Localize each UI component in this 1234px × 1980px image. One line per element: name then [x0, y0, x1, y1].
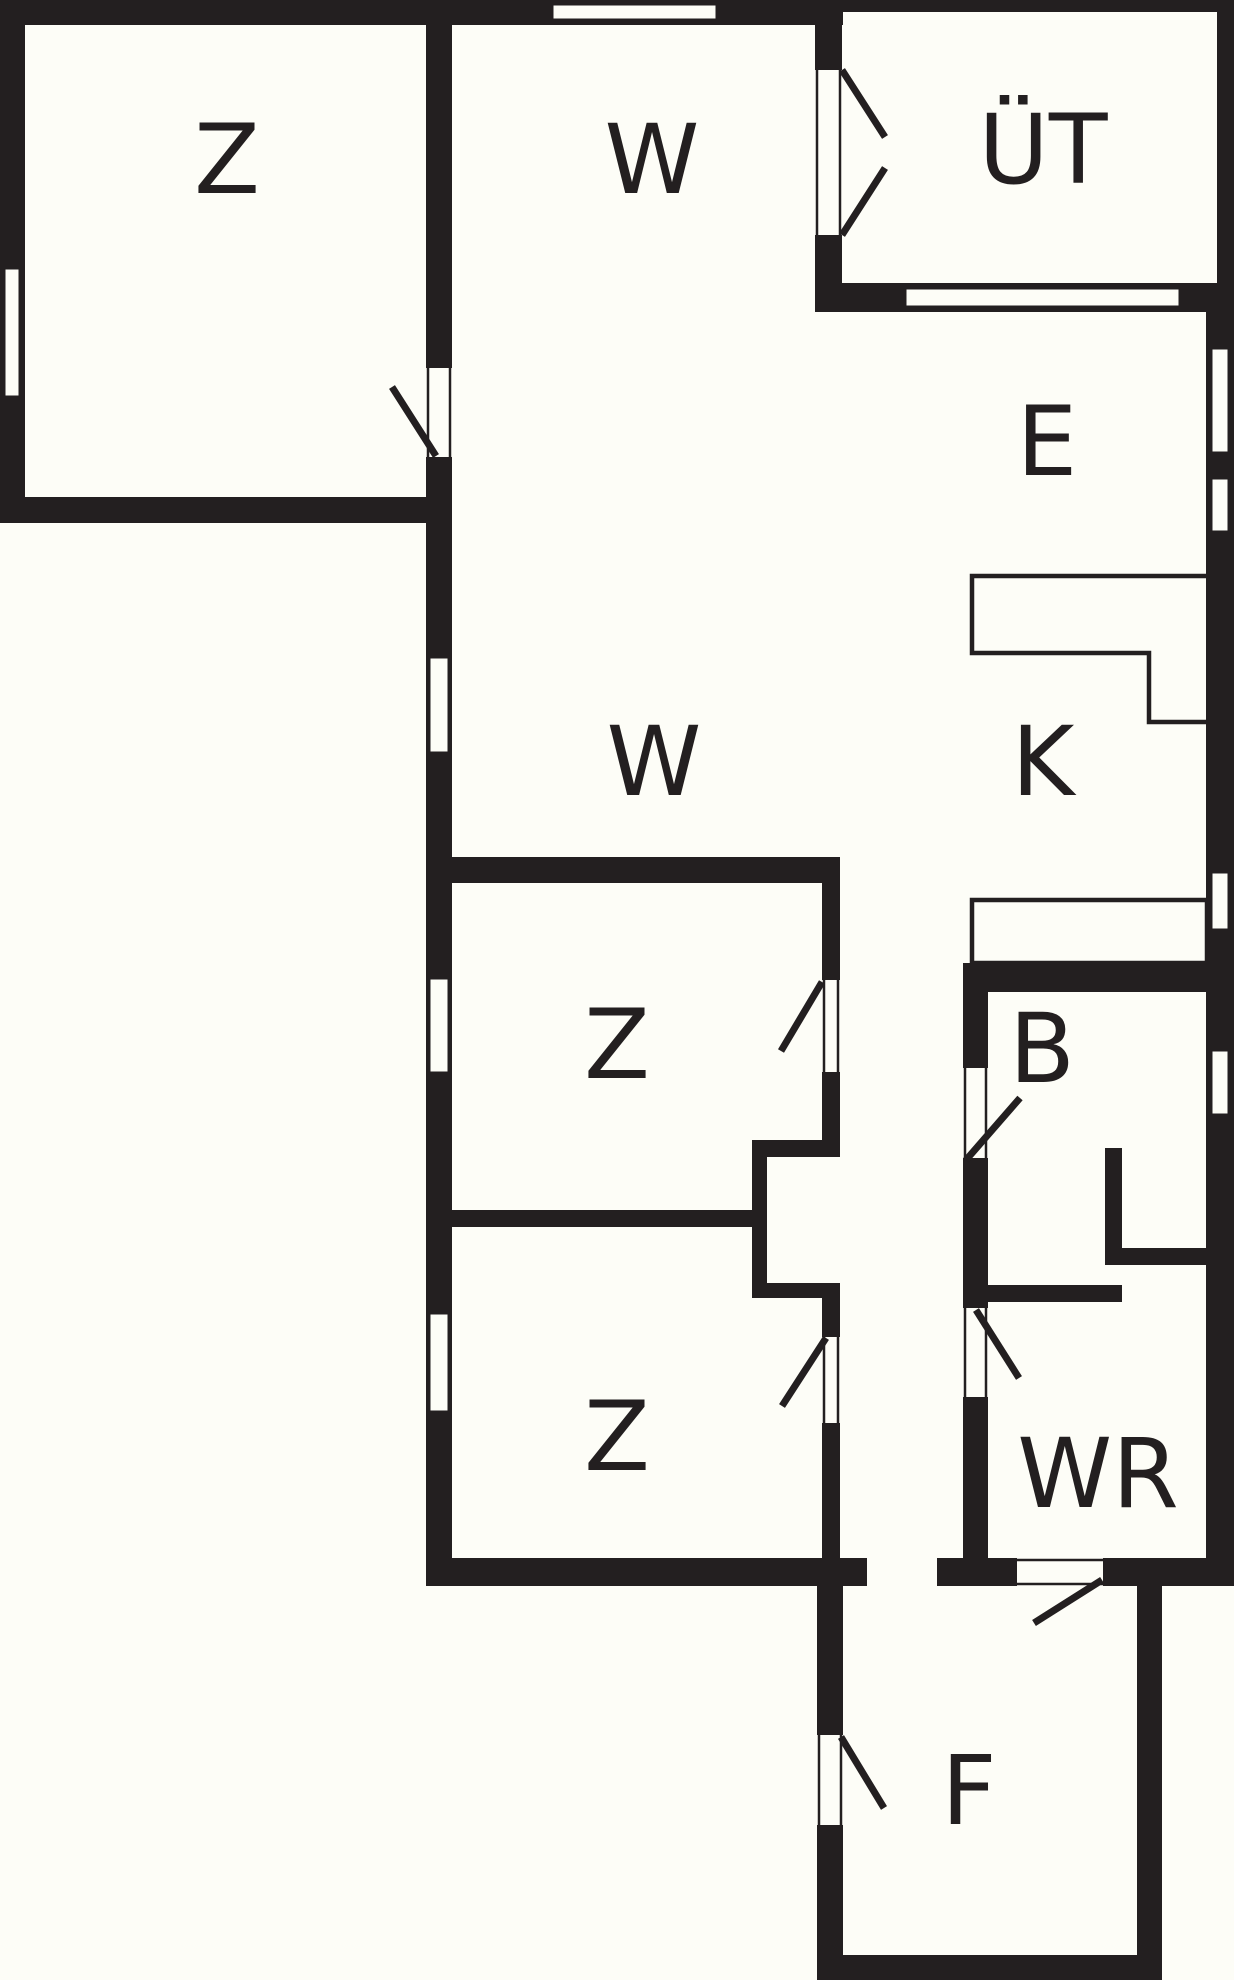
- room-label-e-entry: E: [1017, 386, 1078, 498]
- wall-hall-left-upper: [426, 25, 452, 368]
- room-label-w-hall: W: [607, 706, 702, 818]
- wall-w-ut-stub-lower: [815, 235, 842, 283]
- floor-plan-drawing: ZWÜTEWKZBZWRF: [0, 0, 1234, 1980]
- room-label-ut-porch: ÜT: [979, 94, 1108, 206]
- room-label-wr-room: WR: [1017, 1418, 1179, 1530]
- room-label-z-middle: Z: [584, 989, 650, 1101]
- wall-ut-top-thin: [843, 0, 1234, 12]
- room-label-f-room: F: [941, 1735, 996, 1847]
- wall-b-left-upper: [963, 992, 988, 1068]
- wall-w-ut-stub-upper: [815, 25, 842, 70]
- room-label-b-bath: B: [1009, 993, 1075, 1105]
- wall-b-inner-vert: [1105, 1148, 1122, 1265]
- room-label-z-top-left: Z: [194, 104, 260, 216]
- wall-b-inner-horiz: [1122, 1248, 1206, 1265]
- wall-z3-top: [426, 1210, 767, 1227]
- wall-f-left-upper: [817, 1586, 843, 1735]
- room-label-z-lower: Z: [584, 1381, 650, 1493]
- wall-z3-right-stub: [822, 1298, 840, 1337]
- wall-z3-right-lower: [822, 1423, 840, 1560]
- wall-f-bottom: [817, 1955, 1162, 1980]
- window-left: [4, 268, 20, 397]
- window-top: [552, 4, 717, 20]
- window-right-3: [1211, 872, 1229, 930]
- window-right-2: [1211, 478, 1229, 532]
- wall-z2-top: [426, 857, 840, 883]
- wall-f-right: [1137, 1558, 1162, 1980]
- window-ut-south: [905, 288, 1180, 307]
- wall-alcove-bottom: [752, 1283, 840, 1298]
- wall-z1-bottom: [0, 497, 452, 523]
- window-hall-3: [429, 1313, 449, 1412]
- window-hall-2: [429, 978, 449, 1073]
- wall-ut-right-thin: [1217, 12, 1234, 283]
- room-label-k-kitchen: K: [1012, 706, 1077, 818]
- window-hall-1: [429, 657, 449, 753]
- window-right-1: [1211, 348, 1229, 453]
- floor-plan-canvas: ZWÜTEWKZBZWRF: [0, 0, 1234, 1980]
- wall-bottom-left: [426, 1558, 867, 1586]
- window-right-4: [1211, 1050, 1229, 1115]
- wall-outer-left: [0, 0, 25, 523]
- wall-b-top: [963, 963, 1206, 992]
- room-label-w-top: W: [605, 104, 700, 216]
- wall-wr-left: [963, 1397, 988, 1568]
- wall-z2-right-upper: [822, 883, 840, 980]
- wall-b-bottom: [982, 1285, 1122, 1302]
